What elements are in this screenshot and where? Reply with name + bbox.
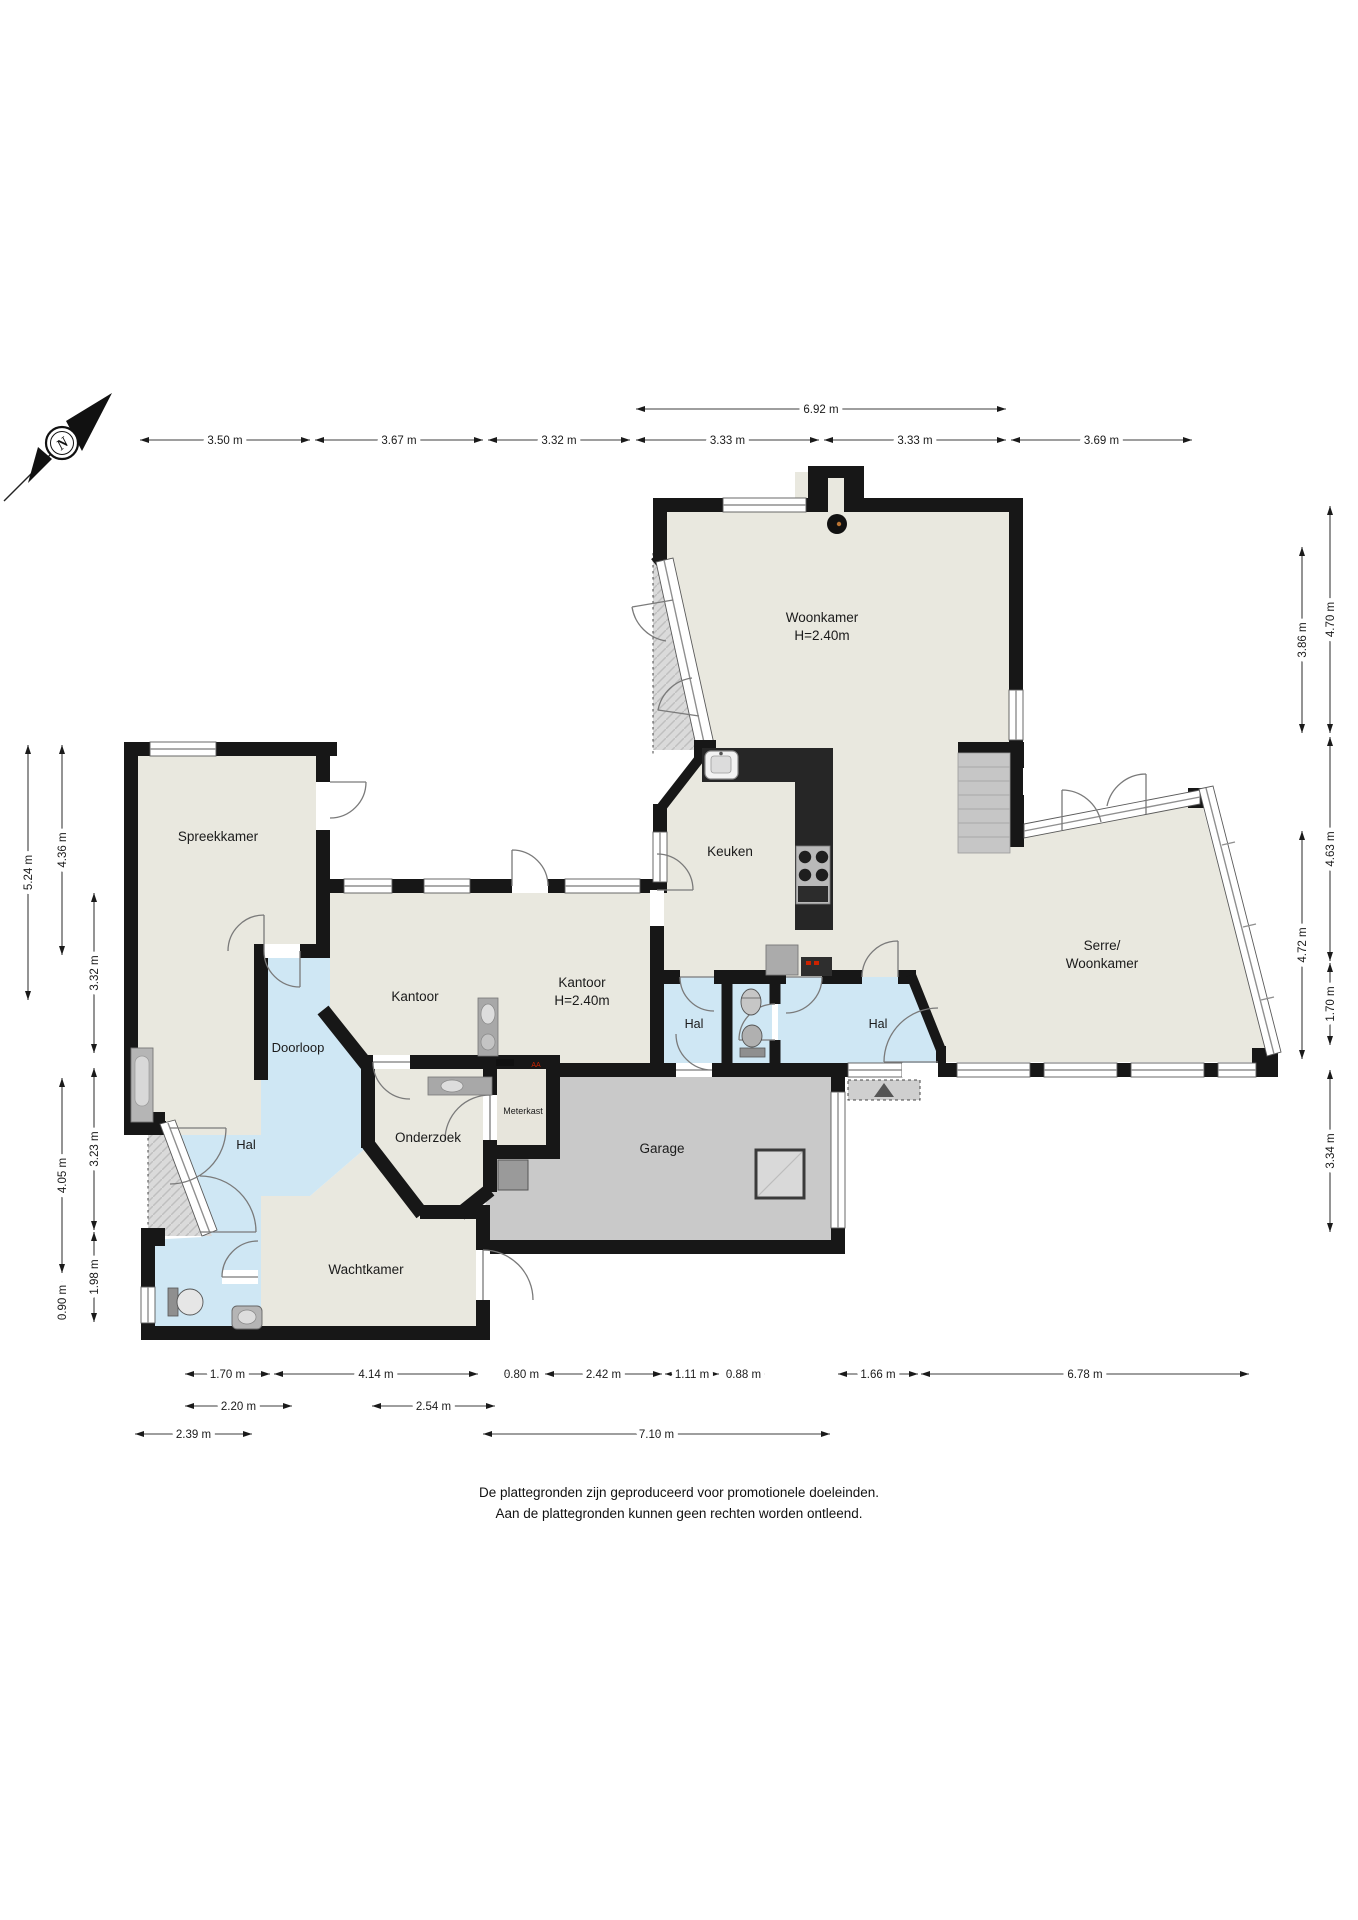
dimension: 2.42 m — [545, 1369, 662, 1381]
room-label-onderzoek: Onderzoek — [395, 1130, 461, 1145]
dimension-label: 3.32 m — [541, 435, 576, 447]
dimension: 2.39 m — [135, 1429, 252, 1441]
dimension-label: 6.92 m — [803, 404, 838, 416]
dimension: 1.66 m — [838, 1369, 918, 1381]
window — [344, 879, 392, 893]
dimension-label: 4.36 m — [57, 832, 69, 867]
dimension-label: 2.20 m — [221, 1401, 256, 1413]
room-label-kantoor-1: Kantoor — [391, 989, 439, 1004]
dimension-label: 0.88 m — [726, 1369, 761, 1381]
dimension: 2.54 m — [372, 1401, 495, 1413]
dimension: 1.70 m — [1325, 963, 1337, 1045]
chimney — [808, 466, 864, 478]
dimension-label: 1.11 m — [675, 1369, 709, 1381]
dimension-label: 1.70 m — [210, 1369, 245, 1381]
dimension: 6.78 m — [921, 1369, 1249, 1381]
stairs — [958, 753, 1010, 853]
dimension-label: 2.39 m — [176, 1429, 211, 1441]
dimension: 3.33 m — [824, 435, 1006, 447]
dimension-label: 1.66 m — [860, 1369, 895, 1381]
dimension: 3.67 m — [315, 435, 483, 447]
room-label-hal-rechts: Hal — [869, 1017, 888, 1031]
window — [848, 1063, 902, 1077]
room-label-wachtkamer: Wachtkamer — [328, 1262, 404, 1277]
compass-icon: N — [4, 393, 112, 501]
dimension: 0.90 m — [57, 1281, 69, 1324]
dimension: 4.05 m — [57, 1078, 69, 1273]
toilet — [168, 1288, 203, 1316]
dimension: 1.70 m — [185, 1369, 270, 1381]
radiator — [131, 1048, 153, 1122]
dimension-label: 3.69 m — [1084, 435, 1119, 447]
dimension-label: 1.98 m — [89, 1259, 101, 1294]
dimension: 3.23 m — [89, 1068, 101, 1230]
dimension: 4.70 m — [1325, 506, 1337, 733]
dimension: 0.88 m — [722, 1369, 765, 1381]
dimension: 3.69 m — [1011, 435, 1192, 447]
dimension: 3.50 m — [140, 435, 310, 447]
window — [424, 879, 470, 893]
room-label-kantoor-2: H=2.40m — [554, 993, 609, 1008]
dimension-label: 7.10 m — [639, 1429, 674, 1441]
dimension-label: 4.72 m — [1297, 927, 1309, 962]
dimension: 3.86 m — [1297, 547, 1309, 733]
dimension-label: 2.42 m — [586, 1369, 621, 1381]
dimension: 2.20 m — [185, 1401, 292, 1413]
boiler — [498, 1160, 528, 1190]
onderzoek-sink-unit — [428, 1077, 492, 1095]
window — [565, 879, 640, 893]
room-label-hal-midden: Hal — [685, 1017, 704, 1031]
dimension-label: 6.78 m — [1067, 1369, 1102, 1381]
dimension: 4.14 m — [274, 1369, 478, 1381]
wall-entrance-stub — [141, 1228, 165, 1246]
room-label-spreekkamer: Spreekkamer — [178, 829, 259, 844]
dimension: 1.11 m — [665, 1369, 719, 1381]
room-label-garage: Garage — [639, 1141, 684, 1156]
room-label-hal-links: Hal — [236, 1137, 256, 1152]
window — [1044, 1063, 1117, 1077]
dimension: 3.33 m — [636, 435, 819, 447]
room-label-woonkamer: Woonkamer — [786, 610, 859, 625]
dimension-label: 3.33 m — [897, 435, 932, 447]
window — [150, 742, 216, 756]
dimension-label: 4.05 m — [57, 1158, 69, 1193]
room-label-serre: Serre/ — [1084, 938, 1121, 953]
window — [957, 1063, 1030, 1077]
window — [141, 1287, 155, 1323]
dimension-label: 4.63 m — [1325, 831, 1337, 866]
wc-sink — [741, 989, 761, 1015]
room-label-meterkast: Meterkast — [503, 1106, 543, 1116]
skylight — [756, 1150, 804, 1198]
dimension: 1.98 m — [89, 1232, 101, 1322]
meter-mark — [496, 1059, 514, 1066]
window — [723, 498, 806, 512]
dimension: 3.32 m — [488, 435, 630, 447]
dimension-label: 3.67 m — [381, 435, 416, 447]
dimension-label: 1.70 m — [1325, 986, 1337, 1021]
window — [1131, 1063, 1204, 1077]
dimension: 4.63 m — [1325, 737, 1337, 961]
dimension: 4.36 m — [57, 745, 69, 955]
dimension: 5.24 m — [23, 745, 35, 1000]
room-label-serre: Woonkamer — [1066, 956, 1139, 971]
dimension-label: 3.34 m — [1325, 1133, 1337, 1168]
window — [1218, 1063, 1256, 1077]
kitchen-sink — [705, 751, 738, 779]
floorplan-page: AA N 6.92 m3.50 m3.67 m3.32 m3.33 m3.33 … — [0, 0, 1358, 1920]
dimension: 6.92 m — [636, 404, 1006, 416]
dimension: 7.10 m — [483, 1429, 830, 1441]
dimension-label: 4.70 m — [1325, 602, 1337, 637]
disclaimer: De plattegronden zijn geproduceerd voor … — [0, 1482, 1358, 1524]
dimension-label: 3.23 m — [89, 1131, 101, 1166]
disclaimer-line-2: Aan de plattegronden kunnen geen rechten… — [0, 1503, 1358, 1524]
room-label-doorloop: Doorloop — [272, 1040, 325, 1055]
floor-plan: AA N 6.92 m3.50 m3.67 m3.32 m3.33 m3.33 … — [0, 0, 1358, 1920]
dimension: 3.32 m — [89, 893, 101, 1053]
dimension-label: 0.80 m — [504, 1369, 539, 1381]
oven — [801, 957, 832, 976]
dimension-label: 2.54 m — [416, 1401, 451, 1413]
fridge — [766, 945, 798, 975]
window — [653, 832, 667, 882]
dimension-label: 3.33 m — [710, 435, 745, 447]
dimension: 0.80 m — [502, 1369, 541, 1381]
room-label-woonkamer: H=2.40m — [794, 628, 849, 643]
dimension-label: 3.50 m — [207, 435, 242, 447]
dimension: 3.34 m — [1325, 1070, 1337, 1232]
dimension-label: 4.14 m — [358, 1369, 393, 1381]
dimension-label: 3.86 m — [1297, 622, 1309, 657]
dimension-label: 0.90 m — [57, 1285, 69, 1320]
window — [1009, 690, 1023, 740]
garage-door — [831, 1092, 845, 1228]
dimension-label: 5.24 m — [23, 855, 35, 890]
dimension: 4.72 m — [1297, 831, 1309, 1059]
meter-code: AA — [531, 1062, 541, 1069]
room-label-kantoor-2: Kantoor — [558, 975, 606, 990]
room-fills — [125, 472, 1270, 1333]
sink — [232, 1306, 262, 1329]
dimension-label: 3.32 m — [89, 955, 101, 990]
room-label-keuken: Keuken — [707, 844, 753, 859]
cooktop — [796, 846, 830, 904]
kantoor-sink-unit — [478, 998, 498, 1056]
disclaimer-line-1: De plattegronden zijn geproduceerd voor … — [0, 1482, 1358, 1503]
flue-inner — [837, 522, 841, 526]
